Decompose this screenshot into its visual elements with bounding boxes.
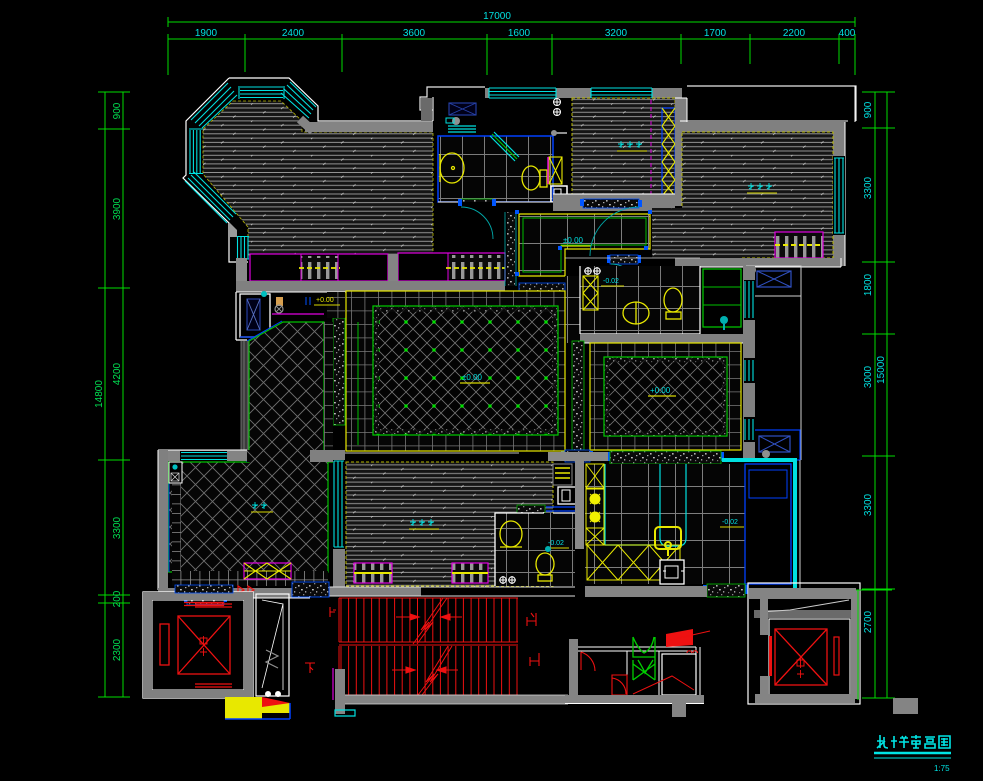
svg-text:±0.00: ±0.00 — [462, 373, 483, 382]
svg-text:-0.02: -0.02 — [603, 278, 619, 285]
svg-text:2300: 2300 — [112, 638, 123, 661]
svg-text:14800: 14800 — [94, 380, 105, 408]
svg-text:4200: 4200 — [112, 362, 123, 385]
svg-text:1700: 1700 — [704, 28, 727, 39]
svg-text:3000: 3000 — [863, 365, 874, 388]
svg-text:2200: 2200 — [783, 28, 806, 39]
svg-text:2400: 2400 — [282, 28, 305, 39]
svg-text:+0.00: +0.00 — [650, 386, 671, 395]
svg-text:-0.02: -0.02 — [548, 540, 564, 547]
svg-text:3300: 3300 — [863, 176, 874, 199]
svg-text:±0.00: ±0.00 — [563, 236, 584, 245]
svg-text:1600: 1600 — [508, 28, 531, 39]
svg-text:3300: 3300 — [863, 493, 874, 516]
svg-text:400: 400 — [839, 28, 856, 39]
svg-text:15000: 15000 — [876, 356, 887, 384]
svg-text:3300: 3300 — [112, 516, 123, 539]
svg-text:1800: 1800 — [863, 273, 874, 296]
svg-text:200: 200 — [112, 590, 123, 607]
svg-text:+0.00: +0.00 — [316, 297, 334, 304]
svg-text:17000: 17000 — [483, 11, 511, 22]
svg-text:900: 900 — [112, 102, 123, 119]
svg-text:3600: 3600 — [403, 28, 426, 39]
svg-text:2700: 2700 — [863, 610, 874, 633]
svg-text:1:75: 1:75 — [934, 764, 950, 773]
svg-text:3200: 3200 — [605, 28, 628, 39]
svg-text:3900: 3900 — [112, 197, 123, 220]
svg-text:-0.02: -0.02 — [722, 519, 738, 526]
svg-text:900: 900 — [863, 101, 874, 118]
svg-text:1900: 1900 — [195, 28, 218, 39]
